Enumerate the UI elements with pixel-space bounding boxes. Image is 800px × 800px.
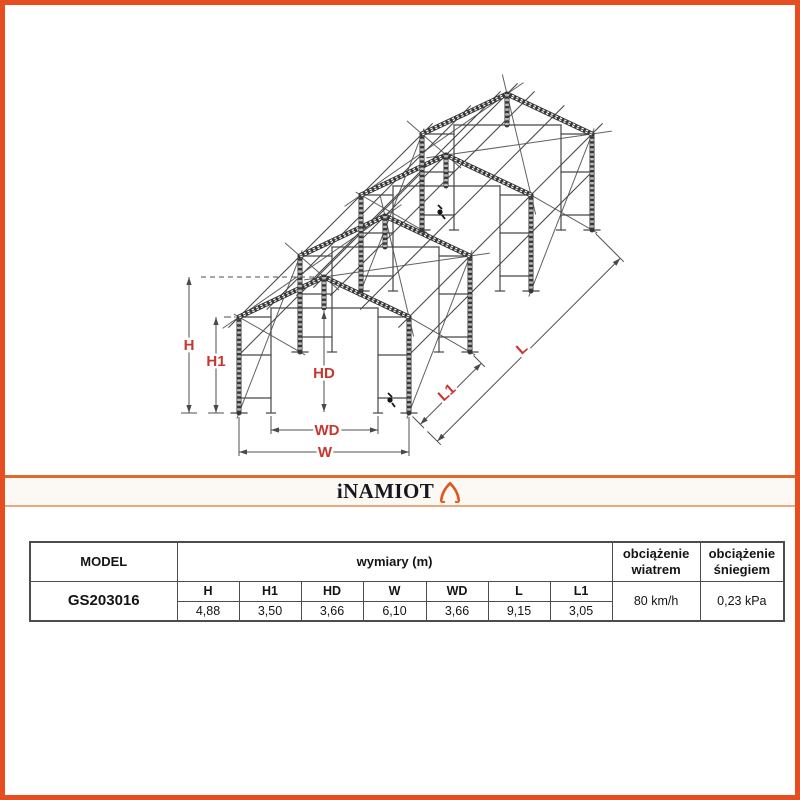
spec-sheet-page: H H1 HD WD W L1 L iNAMIOT: [0, 0, 800, 800]
dim-label-h1: H1: [206, 353, 225, 370]
brand-logo-text: iNAMIOT: [337, 481, 434, 502]
dim-label-wd: WD: [315, 422, 340, 439]
brand-band: iNAMIOT: [5, 475, 795, 507]
value-cell-h1: 3,50: [239, 601, 301, 621]
dimensions-header-cell: wymiary (m): [177, 542, 612, 581]
wind-load-value-cell: 80 km/h: [612, 581, 700, 621]
value-cell-l: 9,15: [488, 601, 550, 621]
dim-label-h: H: [184, 337, 195, 354]
spec-table-wrap: MODEL wymiary (m) obciążenie wiatrem obc…: [29, 541, 785, 622]
value-cell-l1: 3,05: [550, 601, 612, 621]
structure-diagram-svg: H H1 HD WD W L1 L: [5, 5, 795, 471]
spec-table: MODEL wymiary (m) obciążenie wiatrem obc…: [29, 541, 785, 622]
structure-diagram: H H1 HD WD W L1 L: [5, 5, 795, 471]
model-value-cell: GS203016: [30, 581, 177, 621]
dim-col-h: H: [177, 581, 239, 601]
dim-label-l: L: [513, 339, 531, 358]
snow-load-value-cell: 0,23 kPa: [700, 581, 784, 621]
value-cell-h: 4,88: [177, 601, 239, 621]
dim-col-w: W: [363, 581, 426, 601]
dim-label-hd: HD: [313, 365, 335, 382]
wireframe-layer: [181, 75, 624, 456]
dim-col-h1: H1: [239, 581, 301, 601]
value-cell-w: 6,10: [363, 601, 426, 621]
value-cell-hd: 3,66: [301, 601, 363, 621]
dim-col-l1: L1: [550, 581, 612, 601]
tent-icon: [437, 479, 463, 503]
dim-col-l: L: [488, 581, 550, 601]
value-cell-wd: 3,66: [426, 601, 488, 621]
brand-logo: iNAMIOT: [337, 481, 463, 503]
dim-label-w: W: [318, 444, 333, 461]
dim-label-l1: L1: [435, 380, 459, 404]
snow-load-header-cell: obciążenie śniegiem: [700, 542, 784, 581]
wind-load-header-cell: obciążenie wiatrem: [612, 542, 700, 581]
dim-col-hd: HD: [301, 581, 363, 601]
model-header-cell: MODEL: [30, 542, 177, 581]
dim-col-wd: WD: [426, 581, 488, 601]
